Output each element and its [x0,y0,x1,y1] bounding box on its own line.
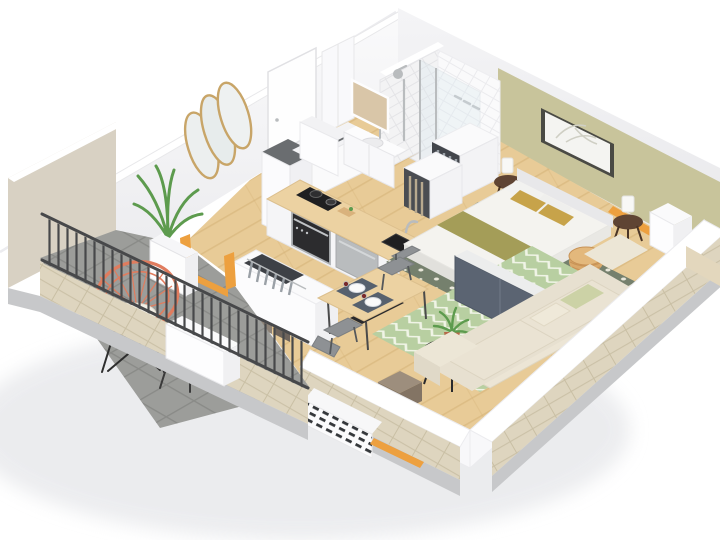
floor-plan-render [0,0,720,540]
pot-1 [310,191,322,198]
door-frame-post-2 [224,252,236,290]
glass-2 [362,294,367,299]
plate-1 [349,284,365,293]
herbs [349,207,353,211]
plate-2 [365,298,381,307]
pot-2 [326,199,336,205]
door-handle [275,118,279,122]
lamp-right [622,196,634,212]
nightstand-right-top [613,215,643,230]
glass-1 [344,282,349,287]
floor-plan-canvas [0,0,720,540]
tall-cabinet [322,36,354,134]
lamp-left [502,158,513,173]
